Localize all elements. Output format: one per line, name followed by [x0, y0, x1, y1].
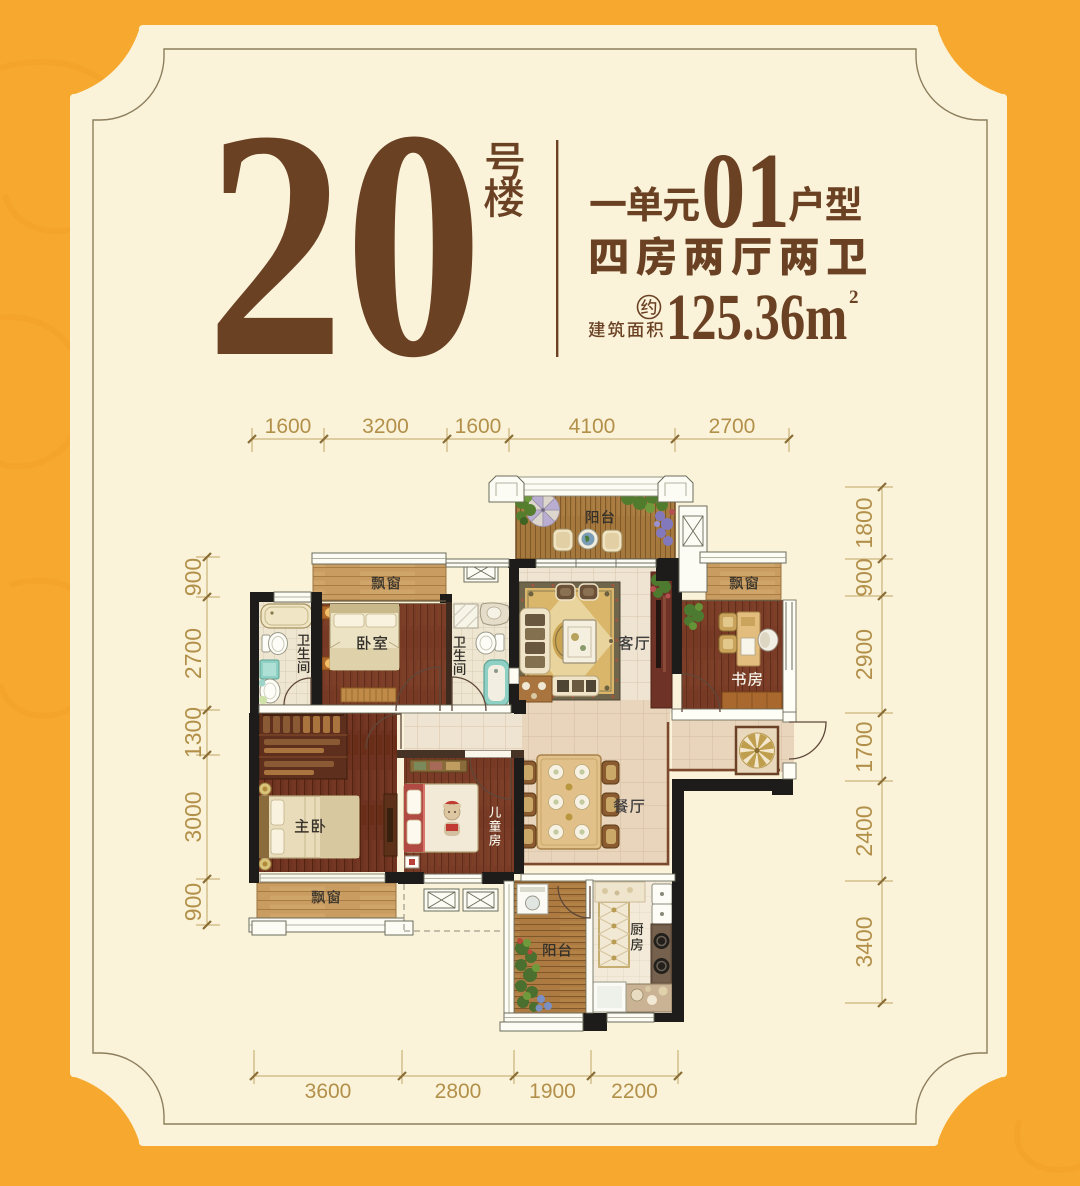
svg-text:2: 2 — [849, 287, 859, 308]
svg-text:900: 900 — [180, 883, 206, 921]
svg-text:1700: 1700 — [851, 721, 877, 772]
svg-text:1600: 1600 — [265, 415, 312, 438]
svg-text:125.36m: 125.36m — [666, 281, 847, 354]
svg-text:01: 01 — [701, 132, 790, 251]
svg-text:1600: 1600 — [455, 415, 502, 438]
svg-text:900: 900 — [180, 558, 206, 596]
svg-text:20: 20 — [206, 63, 483, 426]
svg-text:3400: 3400 — [851, 916, 877, 967]
svg-text:3200: 3200 — [362, 415, 409, 438]
svg-text:900: 900 — [851, 558, 877, 596]
svg-text:3000: 3000 — [180, 791, 206, 842]
svg-text:2400: 2400 — [851, 805, 877, 856]
svg-text:3600: 3600 — [305, 1080, 352, 1103]
svg-text:2800: 2800 — [435, 1080, 482, 1103]
svg-text:1900: 1900 — [529, 1080, 576, 1103]
svg-text:2700: 2700 — [709, 415, 756, 438]
svg-text:4100: 4100 — [569, 415, 616, 438]
svg-text:1300: 1300 — [180, 707, 206, 758]
svg-text:1800: 1800 — [851, 497, 877, 548]
svg-text:2200: 2200 — [611, 1080, 658, 1103]
svg-text:2700: 2700 — [180, 628, 206, 679]
svg-text:2900: 2900 — [851, 629, 877, 680]
